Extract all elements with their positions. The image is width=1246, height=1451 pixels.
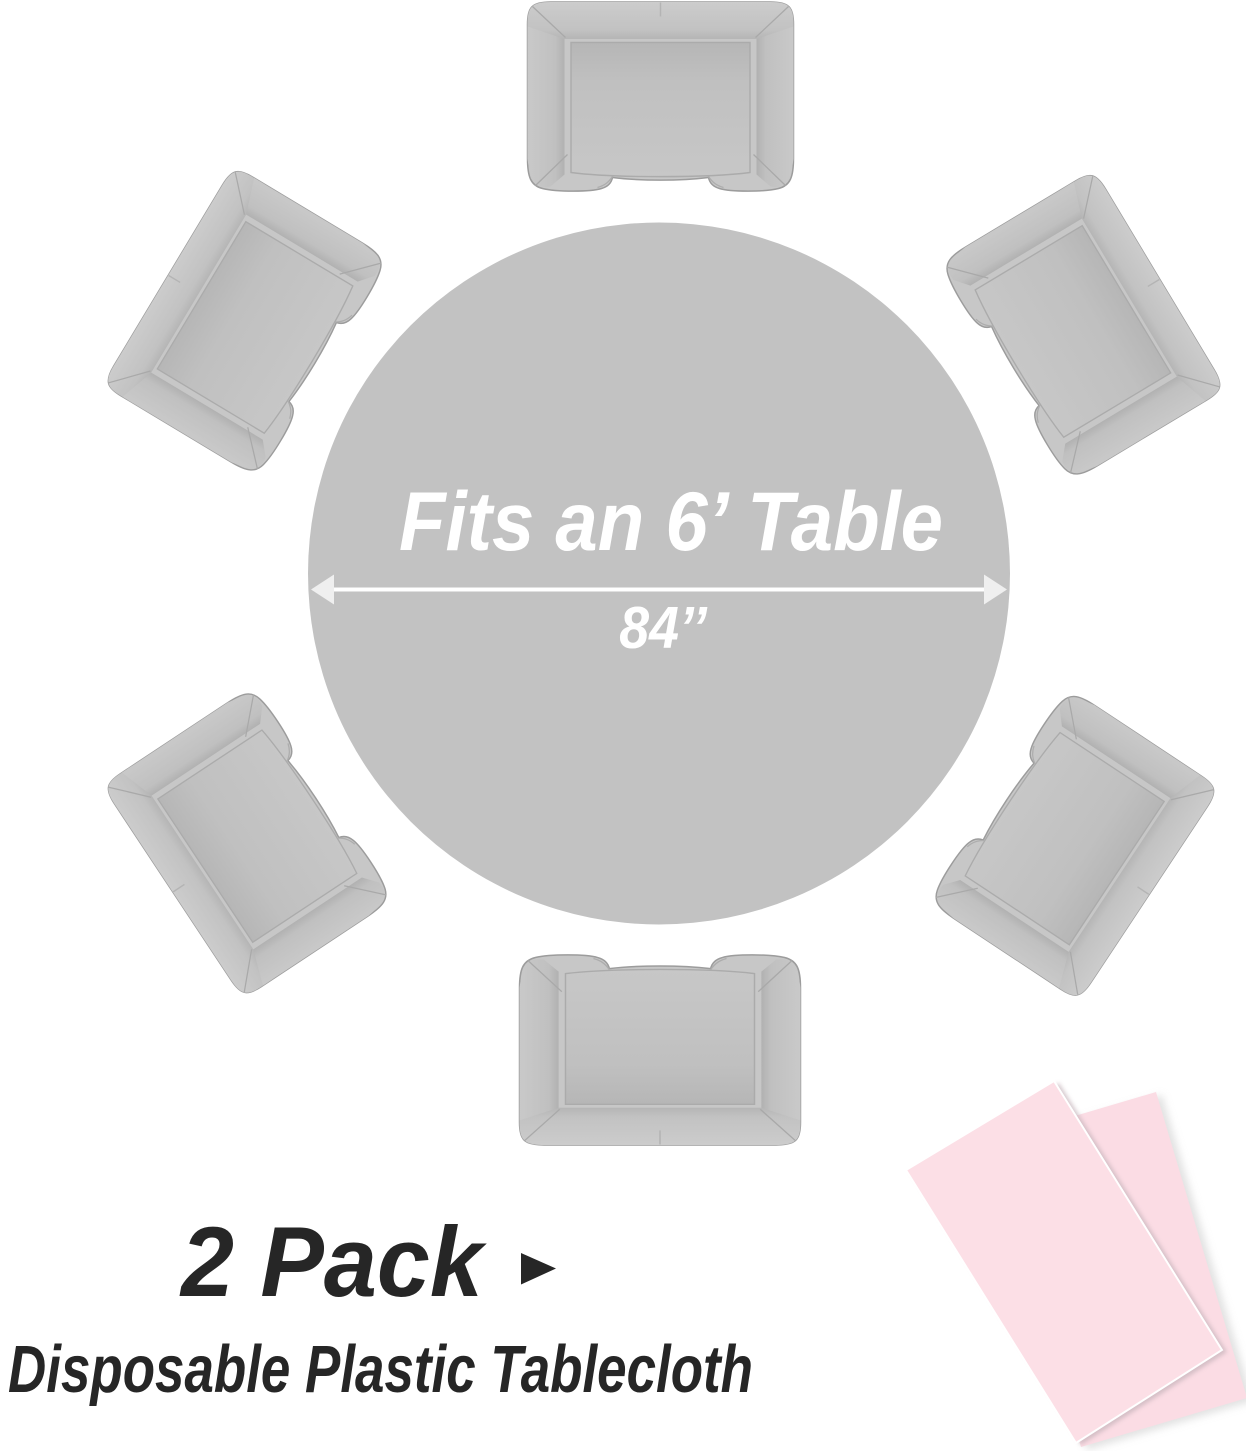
svg-text:Disposable Plastic Tablecloth: Disposable Plastic Tablecloth: [8, 1331, 753, 1406]
svg-text:Fits an 6’ Table: Fits an 6’ Table: [399, 473, 943, 567]
svg-text:84’’: 84’’: [619, 595, 708, 661]
svg-text:2 Pack: 2 Pack: [179, 1206, 488, 1317]
